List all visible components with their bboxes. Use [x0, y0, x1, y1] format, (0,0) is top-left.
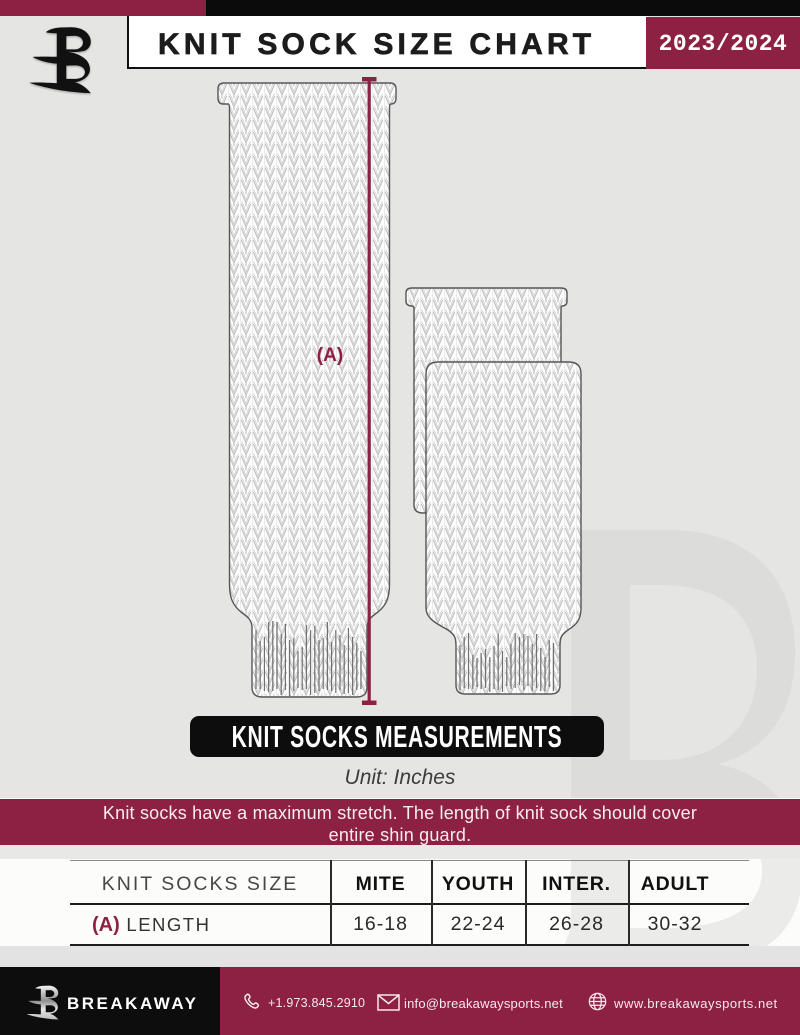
svg-text:(A): (A): [317, 345, 343, 366]
